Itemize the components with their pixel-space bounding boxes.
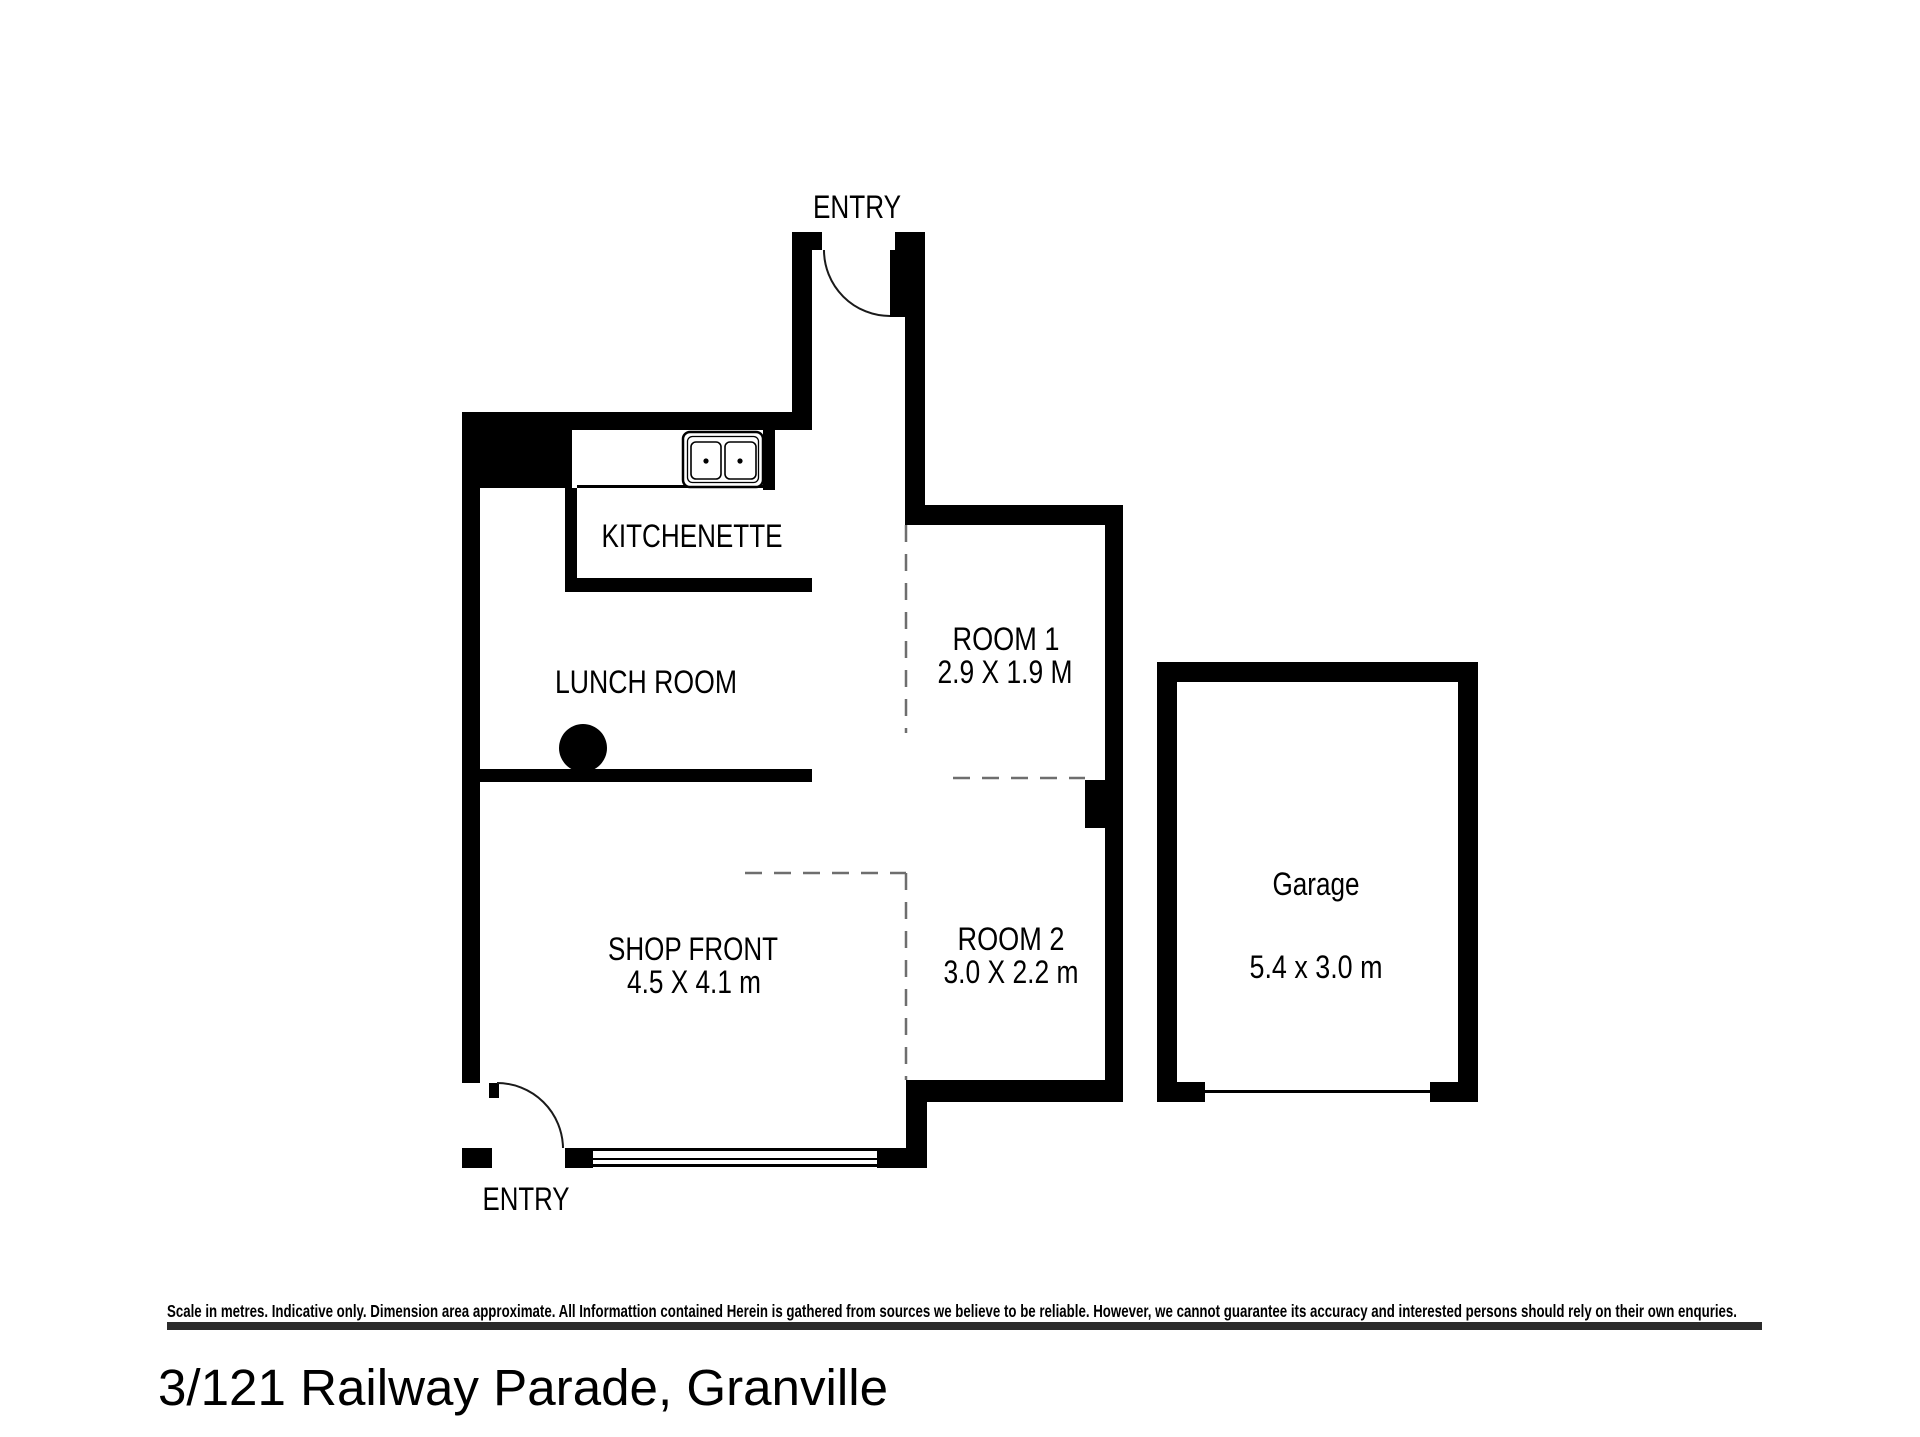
lunch-table bbox=[559, 724, 607, 772]
shop-window-bottom-line bbox=[593, 1164, 877, 1167]
page-title: 3/121 Railway Parade, Granville bbox=[158, 1359, 888, 1416]
entry-bottom-door-arc bbox=[497, 1083, 563, 1148]
sink-drain-right bbox=[737, 458, 742, 463]
wall-left-exterior bbox=[462, 412, 480, 1083]
wall-room1-top bbox=[905, 505, 1123, 525]
shop-front-dimensions: 4.5 X 4.1 m bbox=[627, 964, 761, 1000]
shop-front-label: SHOP FRONT bbox=[608, 931, 778, 967]
shop-window-mid-line bbox=[593, 1158, 877, 1160]
garage-door-line bbox=[1205, 1090, 1430, 1093]
wall-bottom-door-jamb bbox=[489, 1083, 499, 1098]
disclaimer-text: Scale in metres. Indicative only. Dimens… bbox=[167, 1301, 1737, 1321]
wall-bottom-foot-left bbox=[462, 1148, 492, 1168]
wall-kitchenette-bottom bbox=[565, 578, 812, 592]
dashed-partitions bbox=[745, 525, 1085, 1080]
divider-rule bbox=[167, 1322, 1762, 1330]
wall-garage-foot-left bbox=[1157, 1082, 1205, 1102]
wall-counter-right-stub bbox=[763, 430, 775, 490]
wall-corridor-left bbox=[792, 232, 812, 430]
wall-corridor-right bbox=[905, 232, 925, 525]
wall-garage-foot-right bbox=[1430, 1082, 1478, 1102]
garage-dimensions: 5.4 x 3.0 m bbox=[1250, 949, 1383, 985]
wall-garage-right bbox=[1458, 662, 1478, 1102]
wall-rooms-right bbox=[1105, 505, 1123, 1102]
room1-label: ROOM 1 bbox=[953, 621, 1060, 657]
wall-bottom-segment bbox=[565, 1148, 593, 1168]
room-labels: ENTRY KITCHENETTE LUNCH ROOM ROOM 1 2.9 … bbox=[483, 189, 1383, 1217]
room1-dimensions: 2.9 X 1.9 M bbox=[938, 654, 1073, 690]
shop-window-top-line bbox=[593, 1148, 877, 1151]
lunch-room-label: LUNCH ROOM bbox=[555, 664, 737, 700]
wall-entry-door-leaf bbox=[890, 250, 905, 317]
wall-kitchenette-left bbox=[565, 488, 577, 592]
room2-dimensions: 3.0 X 2.2 m bbox=[944, 954, 1079, 990]
wall-room2-bottom bbox=[906, 1080, 1123, 1102]
entry-bottom-label: ENTRY bbox=[483, 1181, 570, 1217]
sink-drain-left bbox=[703, 458, 708, 463]
kitchenette-label: KITCHENETTE bbox=[602, 518, 783, 554]
wall-room2-door-stub bbox=[1085, 780, 1105, 828]
garage-label: Garage bbox=[1273, 866, 1360, 902]
kitchen-sink bbox=[683, 432, 763, 487]
wall-garage-top bbox=[1157, 662, 1478, 682]
walls bbox=[462, 232, 1478, 1168]
wall-lunch-divider bbox=[462, 769, 812, 782]
entry-top-door-arc bbox=[824, 250, 890, 316]
wall-garage-left bbox=[1157, 662, 1177, 1102]
room2-label: ROOM 2 bbox=[958, 921, 1065, 957]
floor-plan: ENTRY KITCHENETTE LUNCH ROOM ROOM 1 2.9 … bbox=[0, 0, 1920, 1437]
entry-top-label: ENTRY bbox=[813, 189, 901, 225]
wall-bottom-right bbox=[877, 1148, 927, 1168]
